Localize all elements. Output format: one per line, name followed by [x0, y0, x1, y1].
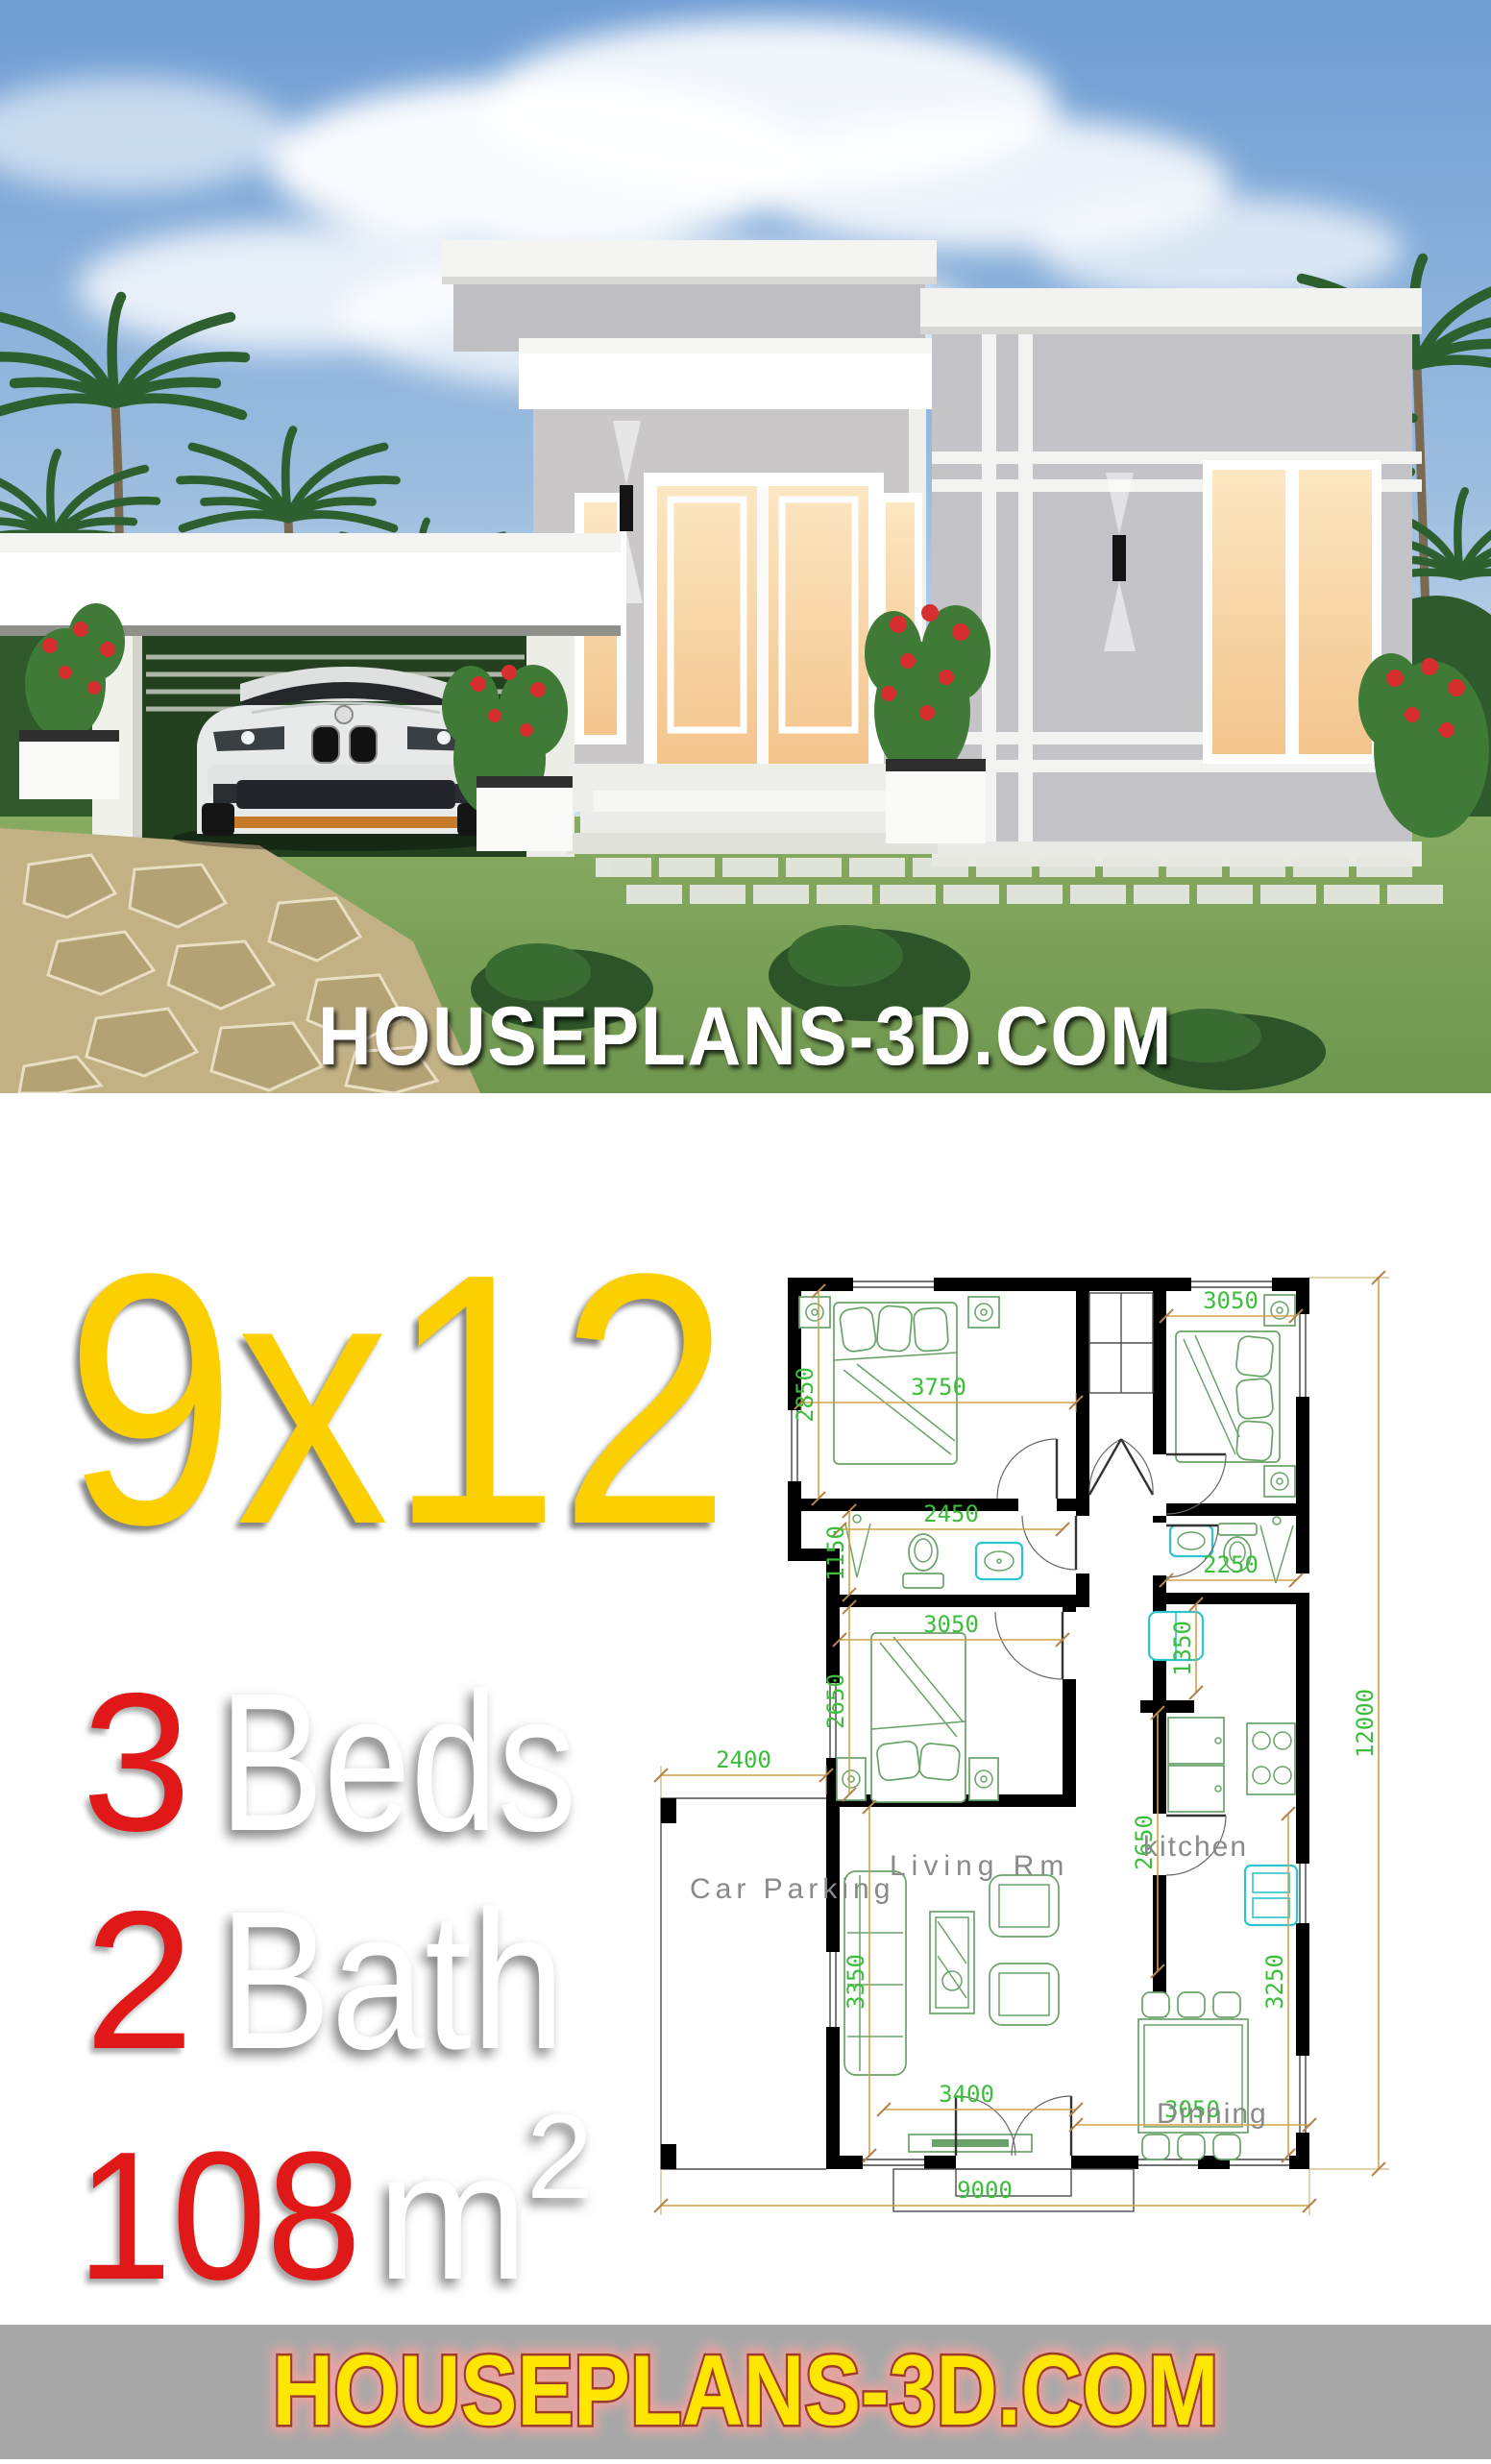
hero-watermark-text: HOUSEPLANS-3D.COM	[318, 990, 1173, 1083]
hall-closet	[1089, 1293, 1153, 1393]
beds-label: Beds	[219, 1652, 576, 1872]
dimension-label: 9000	[957, 2177, 1013, 2204]
dimension-label: 2850	[792, 1367, 819, 1423]
dimension-label: 3050	[1203, 1287, 1259, 1314]
area-value: 108	[77, 2114, 361, 2318]
area-unit: m	[377, 2114, 528, 2318]
dimension-label: 2400	[716, 1746, 771, 1773]
dimension-label: 3050	[923, 1611, 979, 1638]
right-window	[1203, 460, 1381, 764]
bath-label: Bath	[219, 1870, 565, 2090]
footer-banner-text: HOUSEPLANS-3D.COM	[273, 2335, 1219, 2447]
dimension-label: 3250	[1261, 1954, 1288, 2010]
floor-plan-drawing: 3750305028502450115022503050265013502650…	[615, 1249, 1441, 2219]
dimension-label: 12000	[1352, 1689, 1379, 1758]
dining-furniture	[1138, 1992, 1248, 2159]
footer-banner: HOUSEPLANS-3D.COM HOUSEPLANS-3D.COM HOUS…	[0, 2325, 1491, 2459]
room-label: Dinning	[1157, 2098, 1268, 2130]
room-label: kitchen	[1143, 1831, 1248, 1863]
bedroom-3-furniture	[837, 1633, 998, 1802]
beds-count: 3	[82, 1652, 191, 1872]
dimension-label: 2250	[1203, 1551, 1259, 1578]
room-label: Living Rm	[890, 1850, 1069, 1882]
room-label: Car Parking	[690, 1873, 894, 1905]
bedroom-2-furniture	[1176, 1295, 1295, 1497]
dimension-label: 3350	[843, 1954, 869, 2010]
dimension-label: 3400	[939, 2081, 994, 2108]
bedroom-1-furniture	[799, 1297, 999, 1464]
dimension-label: 3750	[911, 1374, 966, 1401]
entry-steps	[567, 791, 938, 854]
house-3d-render: HOUSEPLANS-3D.COM	[0, 0, 1491, 1093]
dimension-label: 1150	[822, 1525, 849, 1581]
dimension-label: 2650	[822, 1673, 849, 1729]
bath-count: 2	[85, 1870, 194, 2090]
dimension-label: 2450	[923, 1500, 979, 1527]
entry-door	[644, 473, 884, 764]
dimension-label: 1350	[1169, 1621, 1196, 1676]
area-exponent: 2	[526, 2090, 594, 2224]
